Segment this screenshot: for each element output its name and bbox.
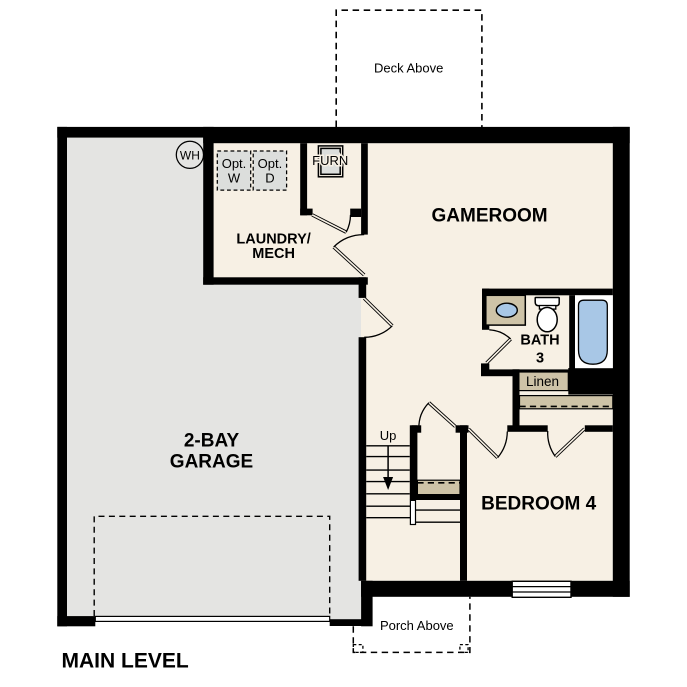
svg-text:3: 3 <box>536 351 544 367</box>
svg-text:GAMEROOM: GAMEROOM <box>432 206 548 227</box>
svg-text:W: W <box>228 171 241 186</box>
svg-text:2-BAY: 2-BAY <box>184 430 240 451</box>
svg-text:Linen: Linen <box>526 374 559 389</box>
svg-text:WH: WH <box>180 148 200 162</box>
svg-text:Up: Up <box>380 428 397 443</box>
svg-text:GARAGE: GARAGE <box>170 452 253 473</box>
svg-text:MAIN LEVEL: MAIN LEVEL <box>62 650 189 673</box>
svg-text:Opt.: Opt. <box>222 156 247 171</box>
svg-text:Opt.: Opt. <box>258 156 283 171</box>
svg-text:Deck Above: Deck Above <box>374 61 443 76</box>
svg-text:FURN: FURN <box>312 153 348 168</box>
svg-text:Porch Above: Porch Above <box>380 618 454 633</box>
svg-text:BEDROOM 4: BEDROOM 4 <box>481 494 597 515</box>
svg-text:BATH: BATH <box>520 333 559 349</box>
svg-text:D: D <box>265 171 274 186</box>
svg-text:MECH: MECH <box>252 246 295 262</box>
